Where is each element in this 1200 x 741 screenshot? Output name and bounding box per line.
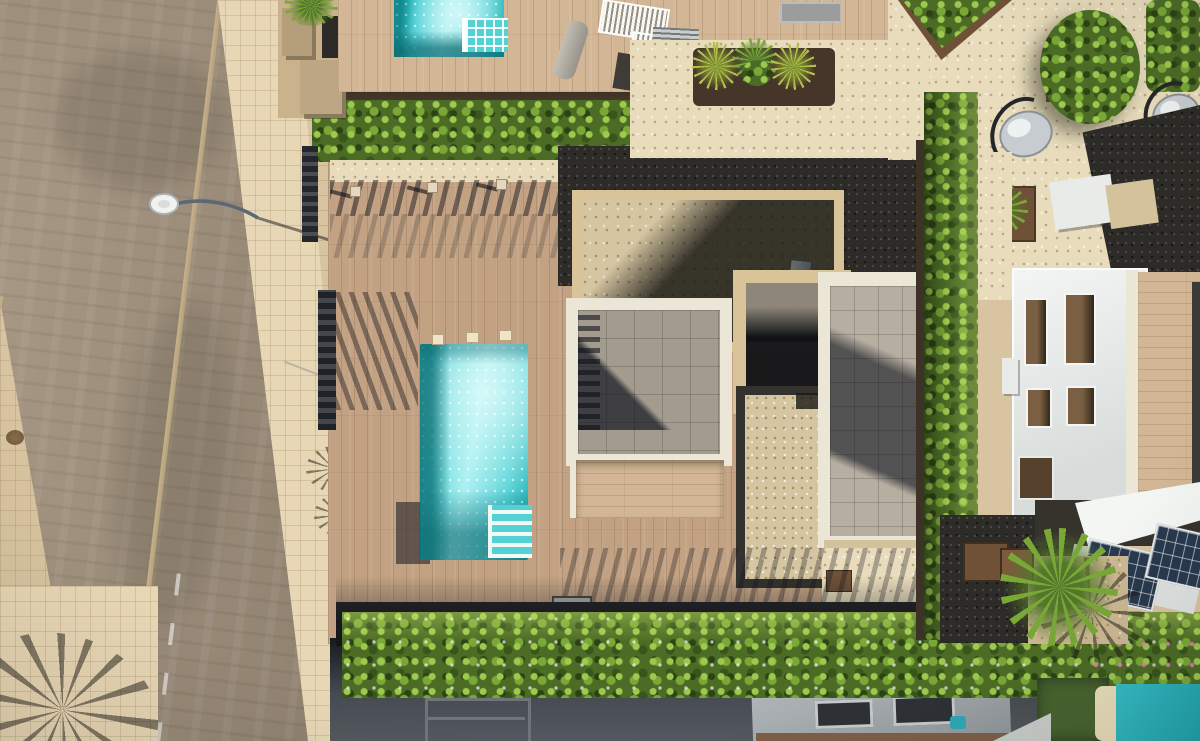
outbuilding-skylight-1 (815, 699, 874, 729)
house-patio-window-2 (1064, 293, 1096, 365)
house-side-ledge (1002, 358, 1018, 394)
fence-shadow-on-deck (336, 292, 418, 410)
west-fence-gate (318, 290, 336, 430)
outbuilding-skylight-2 (892, 694, 955, 726)
bollard-light-2 (427, 182, 438, 193)
north-deck-skylight (780, 2, 842, 23)
bollard-light-1 (350, 186, 361, 197)
terrace-shadow-band (830, 286, 924, 536)
courtyard-corner-shadow (578, 310, 696, 430)
house-patio-window-1 (1024, 298, 1048, 366)
house-deck-beam (1126, 270, 1138, 524)
bollard-light-3 (496, 179, 507, 190)
north-pool-steps (462, 18, 508, 52)
planter-bush (742, 60, 772, 86)
lower-timber-patio (570, 460, 724, 518)
fan-palm (1000, 528, 1118, 646)
hedge-side-gravel (978, 152, 1012, 294)
north-wall-block-2 (300, 60, 342, 114)
deck-spotlight-1 (432, 334, 444, 345)
alley-frame-crossbar (425, 717, 525, 720)
ne-tan-strip (1105, 179, 1159, 229)
deck-spotlight-3 (499, 330, 512, 341)
deck-spotlight-2 (466, 332, 479, 343)
street-lamp (140, 188, 350, 258)
house-lower-opening (1018, 456, 1054, 500)
house-patio-window-4 (1066, 386, 1096, 426)
neighbor-pool-southeast (1116, 684, 1200, 741)
pool-steps (488, 505, 532, 558)
outbuilding-brick-edge (756, 733, 1008, 741)
lamp-lens (158, 200, 170, 208)
house-patio-window-3 (1026, 388, 1052, 428)
manhole-cover (6, 430, 24, 445)
lamp-shadow (258, 218, 336, 242)
teal-bin (950, 716, 966, 729)
aerial-villa-photo (0, 0, 1200, 741)
tower-corner-shadow (796, 393, 818, 409)
lamp-arm (168, 201, 258, 218)
west-fence-upper (302, 146, 318, 242)
